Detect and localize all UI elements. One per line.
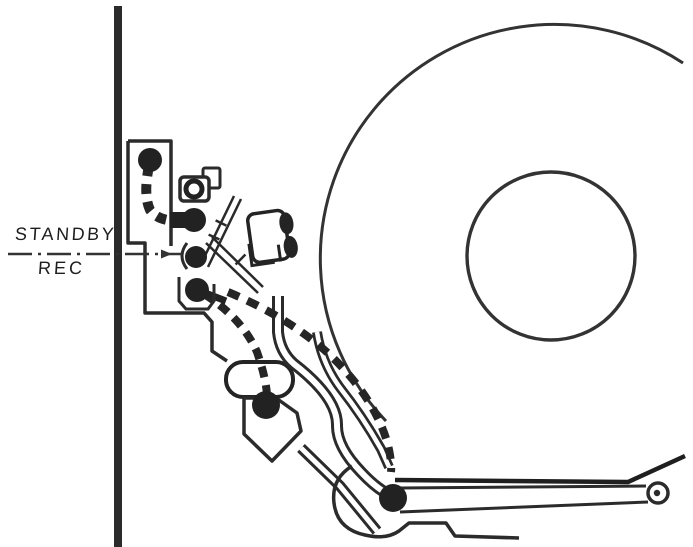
pinch-roller — [252, 391, 280, 419]
pinch-roller-capsule — [226, 362, 293, 397]
chassis-wall — [114, 6, 122, 547]
guide-roller-upper — [182, 208, 206, 232]
tape-exit-line — [395, 456, 685, 482]
diagram-canvas: STANDBY REC — [0, 0, 693, 547]
arm-end-guide-hub — [654, 490, 660, 496]
mode-divider-line — [8, 250, 182, 259]
tension-arm — [399, 486, 648, 512]
mechanism-drawing — [0, 0, 693, 547]
rec-label: REC — [37, 259, 85, 277]
lamp-bracket — [180, 168, 220, 201]
drum-hub — [467, 172, 635, 340]
divider-arrowhead — [161, 250, 172, 259]
rec-head-block — [245, 208, 300, 265]
pivot-roller — [379, 484, 407, 512]
guide-roller-mid — [185, 246, 207, 268]
standby-label: STANDBY — [14, 225, 116, 243]
bracket-ring — [186, 181, 202, 197]
entry-guide-roller — [138, 148, 162, 172]
